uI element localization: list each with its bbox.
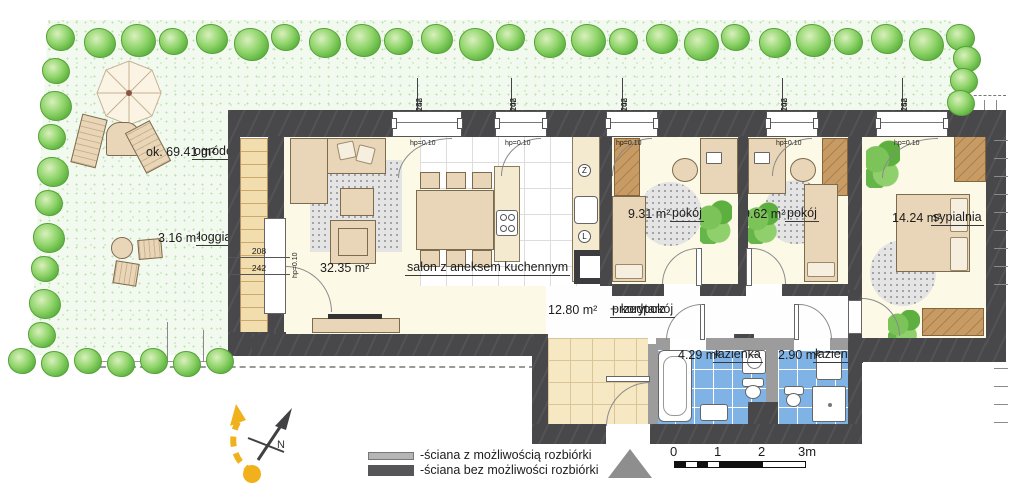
entrance-door bbox=[606, 376, 650, 382]
bush-icon bbox=[909, 28, 944, 61]
bush-icon bbox=[196, 24, 228, 54]
bush-icon bbox=[38, 124, 66, 150]
dining-table bbox=[416, 190, 494, 250]
bush-icon bbox=[796, 24, 831, 57]
dining-chair bbox=[472, 172, 492, 189]
toilet-icon bbox=[786, 393, 801, 407]
fridge-symbol: L bbox=[578, 230, 591, 243]
shaft-bathrooms bbox=[748, 402, 778, 424]
bathtub-inner bbox=[663, 356, 687, 416]
legend-swatch-structural bbox=[368, 465, 414, 476]
boundary-tick bbox=[994, 158, 1008, 159]
window bbox=[392, 111, 462, 137]
wall-bottom-bathrooms bbox=[650, 424, 862, 444]
coffee-table bbox=[340, 188, 374, 216]
plant-icon bbox=[700, 200, 732, 244]
bedroom-pillow bbox=[950, 237, 968, 271]
sink-icon bbox=[700, 404, 728, 421]
bush-icon bbox=[384, 28, 413, 55]
boundary-stake bbox=[203, 330, 204, 362]
hp-label: hp=0.10 bbox=[292, 234, 299, 278]
bush-icon bbox=[496, 24, 525, 51]
window bbox=[495, 111, 547, 137]
hp-label: hp=0.10 bbox=[616, 140, 642, 147]
boundary-tick bbox=[994, 194, 1008, 195]
bush-icon bbox=[459, 28, 494, 61]
bush-icon bbox=[74, 348, 102, 374]
boundary-tick bbox=[994, 284, 1008, 285]
room1-chair bbox=[672, 158, 698, 182]
bush-icon bbox=[421, 24, 453, 54]
bush-icon bbox=[42, 58, 70, 84]
balcony-door-dim: 242 bbox=[228, 263, 290, 275]
compass-icon: N bbox=[222, 398, 318, 490]
bush-icon bbox=[271, 24, 300, 51]
hp-label: hp=0.10 bbox=[776, 140, 802, 147]
boundary-tick bbox=[994, 368, 1008, 369]
boundary-tick bbox=[994, 386, 1008, 387]
bush-icon bbox=[534, 28, 566, 58]
bush-icon bbox=[173, 351, 201, 377]
wall-salon-left-upper bbox=[268, 136, 284, 220]
scale-bar bbox=[674, 461, 806, 468]
wall-corridor bbox=[700, 284, 746, 296]
bush-icon bbox=[35, 190, 63, 216]
bush-icon bbox=[309, 28, 341, 58]
boundary-tick bbox=[994, 140, 1008, 141]
bush-icon bbox=[140, 348, 168, 374]
bedroom-wardrobe bbox=[954, 134, 986, 182]
legend-swatch-demolishable bbox=[368, 452, 414, 460]
hp-label: hp=0.10 bbox=[410, 140, 436, 147]
bush-icon bbox=[41, 351, 69, 377]
dishwasher-symbol: Z bbox=[578, 164, 591, 177]
legend-label-structural: -ściana bez możliwości rozbiórki bbox=[420, 463, 599, 477]
wall-bottom-entry bbox=[532, 424, 606, 444]
sofa-pillow bbox=[336, 140, 356, 160]
boundary-stake bbox=[167, 322, 168, 362]
bush-icon bbox=[33, 223, 65, 253]
wall-left bbox=[228, 110, 240, 356]
bush-icon bbox=[37, 157, 69, 187]
window bbox=[766, 111, 818, 137]
hp-label: hp=0.10 bbox=[505, 140, 531, 147]
garden-chair bbox=[112, 260, 139, 286]
garden-table bbox=[111, 237, 133, 259]
boundary-tick bbox=[994, 266, 1008, 267]
kitchen-sink-icon bbox=[574, 196, 598, 224]
wall-bedroom-bottom bbox=[848, 338, 1006, 362]
wall-bedroom-left-upper bbox=[848, 290, 862, 300]
bedroom-dresser bbox=[922, 308, 984, 336]
armchair-seat bbox=[338, 228, 368, 256]
bush-icon bbox=[29, 289, 61, 319]
bedroom-door bbox=[848, 300, 862, 334]
shaft-inner bbox=[580, 256, 602, 278]
bush-icon bbox=[46, 24, 75, 51]
window bbox=[606, 111, 658, 137]
tv bbox=[328, 314, 382, 319]
boundary-tick bbox=[994, 230, 1008, 231]
bush-icon bbox=[871, 24, 903, 54]
balcony-door-dim: 208 bbox=[228, 246, 290, 258]
entrance-opening bbox=[606, 424, 650, 444]
toilet-icon bbox=[745, 385, 761, 399]
hp-label: hp=0.10 bbox=[894, 140, 920, 147]
bush-icon bbox=[609, 28, 638, 55]
room2-pillow bbox=[807, 262, 835, 277]
bush-icon bbox=[121, 24, 156, 57]
window bbox=[876, 111, 948, 137]
stove-icon bbox=[496, 210, 518, 236]
shower-drain bbox=[828, 403, 832, 407]
wall-salon-bottom bbox=[252, 334, 548, 356]
scale-label: 0 bbox=[670, 444, 677, 459]
boundary-tick bbox=[994, 176, 1008, 177]
wall-corridor-bathrooms bbox=[830, 338, 848, 350]
legend-label-demolishable: -ściana z możliwością rozbiórki bbox=[420, 448, 592, 462]
bush-icon bbox=[646, 24, 678, 54]
wall-room2-bedroom bbox=[848, 136, 862, 290]
bush-icon bbox=[571, 24, 606, 57]
bush-icon bbox=[234, 28, 269, 61]
wall-corridor bbox=[782, 284, 848, 296]
bush-icon bbox=[346, 24, 381, 57]
tv-cabinet bbox=[312, 318, 400, 333]
floor-plan: ogródek ok. 69.41 m² loggia 3.16 m² Z L bbox=[0, 0, 1009, 500]
bush-icon bbox=[759, 28, 791, 58]
room1-laptop bbox=[706, 152, 722, 164]
scale-label: 2 bbox=[758, 444, 765, 459]
boundary-tick bbox=[994, 212, 1008, 213]
wall-corridor-bathrooms bbox=[706, 338, 794, 350]
bush-icon bbox=[834, 28, 863, 55]
bush-icon bbox=[159, 28, 188, 55]
bush-icon bbox=[684, 28, 719, 61]
bush-icon bbox=[947, 90, 975, 116]
bush-icon bbox=[107, 351, 135, 377]
wall-right bbox=[986, 110, 1006, 362]
wall-corridor bbox=[612, 284, 664, 296]
bush-icon bbox=[84, 28, 116, 58]
bush-icon bbox=[28, 322, 56, 348]
boundary-tick bbox=[994, 422, 1008, 423]
room1-pillow bbox=[615, 264, 643, 279]
room2-laptop bbox=[754, 152, 770, 164]
boundary-tick bbox=[994, 248, 1008, 249]
scale-label: 1 bbox=[714, 444, 721, 459]
north-label: N bbox=[277, 439, 285, 451]
sofa bbox=[290, 138, 328, 204]
bush-icon bbox=[40, 91, 72, 121]
bush-icon bbox=[206, 348, 234, 374]
bush-icon bbox=[8, 348, 36, 374]
bush-icon bbox=[721, 24, 750, 51]
scale-label: 3m bbox=[798, 444, 816, 459]
wall-kitchen-room1 bbox=[600, 136, 612, 286]
bush-icon bbox=[31, 256, 59, 282]
entrance-marker-triangle bbox=[608, 449, 652, 478]
room1-desk bbox=[700, 138, 738, 194]
boundary-tick bbox=[994, 404, 1008, 405]
